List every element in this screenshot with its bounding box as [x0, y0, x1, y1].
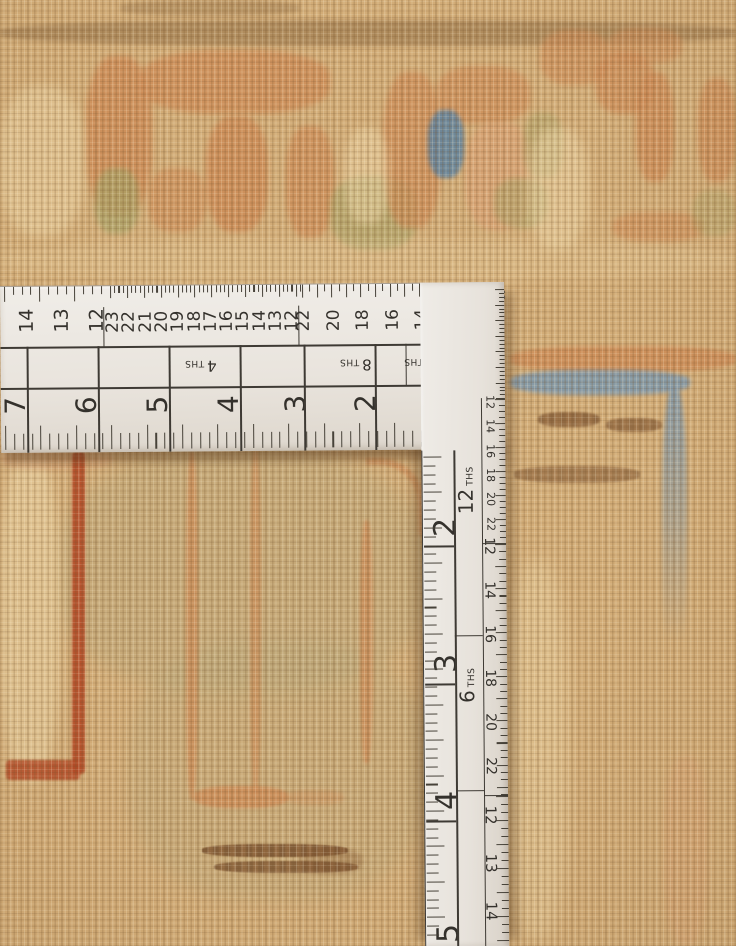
tick [191, 432, 192, 448]
tick [496, 632, 507, 633]
tick [359, 423, 360, 447]
tick [224, 285, 225, 292]
tick [341, 431, 342, 447]
tick [271, 432, 272, 448]
tick [280, 432, 281, 448]
tick [499, 417, 505, 418]
tick [500, 386, 505, 387]
tick [499, 595, 506, 596]
tick [499, 573, 506, 574]
tick [110, 286, 111, 298]
graduation-value: 4 [207, 358, 217, 373]
ruler-engraved-line [1, 385, 429, 390]
tick [317, 284, 318, 297]
tick [404, 284, 405, 297]
tick [424, 545, 436, 546]
tick [502, 860, 509, 861]
tick [502, 884, 509, 885]
tick [5, 426, 6, 450]
tick [501, 804, 508, 805]
tick [412, 431, 413, 447]
tick [426, 766, 438, 767]
tick [499, 435, 505, 436]
tick [114, 286, 115, 293]
tick [424, 483, 436, 484]
tick [262, 432, 263, 448]
tick [499, 581, 506, 582]
tick [235, 432, 236, 448]
tick [127, 286, 128, 298]
tick [495, 305, 504, 306]
tick [397, 284, 398, 291]
tick [500, 603, 507, 604]
tick [390, 284, 391, 297]
ruler-engraved-line [456, 790, 484, 791]
tick [500, 706, 507, 707]
tick [425, 687, 437, 688]
tick [232, 285, 233, 292]
tick [495, 588, 506, 589]
tick [426, 846, 444, 847]
graduation-value: 12 [456, 489, 476, 515]
square-tongue-vertical: 234512141618202212141618202212131412THS6… [420, 282, 509, 946]
tick [207, 285, 208, 292]
tick [13, 287, 14, 295]
tick [424, 510, 436, 511]
tick [496, 698, 507, 699]
scale-number-inch-h: 4 [215, 395, 243, 413]
tick [495, 423, 505, 424]
scale-number-edge-1: 16 [485, 444, 496, 458]
tick [502, 900, 509, 901]
tick [279, 285, 280, 297]
tick [497, 916, 509, 917]
scale-number-top-c: 18 [355, 309, 372, 331]
tick [426, 749, 438, 750]
tick [14, 434, 15, 450]
scale-number-inch-h: 6 [73, 396, 101, 414]
tick [291, 285, 292, 292]
tick [253, 285, 254, 292]
tick [245, 285, 246, 297]
tick [324, 423, 325, 447]
tick [499, 411, 505, 412]
graduation-label: 4THS [185, 358, 217, 373]
tick [425, 607, 437, 608]
tick [386, 431, 387, 447]
tick [499, 559, 506, 560]
tick [424, 501, 436, 502]
tick [120, 433, 121, 449]
tick [424, 492, 442, 493]
tick [500, 371, 505, 372]
tick [66, 286, 67, 294]
tick [501, 750, 508, 751]
scale-number-edge-1: 14 [485, 419, 496, 433]
tick [495, 447, 505, 448]
graduation-label: 8THS [340, 357, 372, 372]
tick [495, 544, 506, 545]
tick [499, 405, 505, 406]
tick [403, 431, 404, 447]
tick [499, 308, 504, 309]
tick [500, 531, 506, 532]
tick [262, 285, 263, 297]
tick [424, 580, 436, 581]
tick [425, 669, 443, 670]
tick [501, 728, 508, 729]
tick [496, 720, 507, 721]
tick [129, 433, 130, 449]
tick [424, 589, 436, 590]
tick [39, 287, 40, 302]
tick [424, 598, 442, 599]
tick [173, 433, 174, 449]
tick [425, 616, 437, 617]
tick [275, 285, 276, 292]
tick [131, 286, 132, 293]
tick [499, 429, 505, 430]
tick [147, 425, 148, 449]
tick [237, 285, 238, 292]
tick [427, 881, 445, 882]
tick [249, 285, 250, 292]
tick [427, 908, 439, 909]
framing-square: 1413122322212019181716151413122220181614… [0, 0, 736, 946]
tick [500, 483, 506, 484]
scale-number-top-a: 13 [53, 308, 72, 332]
tick [427, 864, 439, 865]
scale-number-top-a: 14 [18, 309, 37, 333]
tick [144, 286, 145, 298]
tick [502, 908, 509, 909]
tick [426, 855, 438, 856]
tick-marks [420, 282, 504, 283]
tick [501, 779, 508, 780]
tick [211, 285, 212, 297]
tick [499, 332, 504, 333]
tick [228, 285, 229, 297]
tick [226, 432, 227, 448]
tick [424, 563, 442, 564]
tick [182, 425, 183, 449]
tick [427, 934, 439, 935]
tick [426, 819, 438, 820]
tick [427, 917, 445, 918]
tick [424, 572, 436, 573]
tick [23, 434, 24, 450]
tick [425, 713, 437, 714]
tick [190, 285, 191, 292]
scale-number-edge-2: 12 [482, 537, 496, 555]
tick [501, 828, 508, 829]
tick [426, 731, 438, 732]
tick [111, 425, 112, 449]
tick [427, 926, 439, 927]
tick [394, 423, 395, 447]
tick [41, 426, 42, 450]
tick [194, 285, 195, 297]
tick [496, 383, 505, 384]
tick [426, 740, 444, 741]
tick [368, 431, 369, 447]
tick [499, 453, 505, 454]
tick [300, 285, 301, 292]
tick [74, 286, 75, 301]
tick [427, 890, 439, 891]
scale-number-edge-1: 20 [485, 492, 496, 506]
tick [152, 286, 153, 293]
scale-number-top-c: 16 [385, 309, 402, 331]
tick [101, 286, 102, 294]
tick [346, 284, 347, 297]
tick [424, 474, 436, 475]
tick [425, 660, 437, 661]
tick [496, 495, 506, 496]
tick [497, 892, 509, 893]
tick [253, 424, 254, 448]
tick [500, 662, 507, 663]
tick [500, 525, 506, 526]
tick [500, 363, 505, 364]
tick [377, 431, 378, 447]
tick [424, 554, 436, 555]
tick [375, 284, 376, 297]
tick [501, 757, 508, 758]
scale-number-inch-h: 5 [144, 396, 172, 414]
tick [495, 320, 504, 321]
tick [500, 513, 506, 514]
tick [288, 424, 289, 448]
tick [496, 676, 507, 677]
tick [500, 647, 507, 648]
tick [83, 286, 84, 294]
tick [333, 431, 334, 447]
tick [315, 431, 316, 447]
graduation-value: 8 [362, 357, 372, 372]
tick [496, 796, 508, 797]
tick [499, 293, 504, 294]
tick [283, 285, 284, 292]
tick [501, 852, 508, 853]
tick [502, 924, 509, 925]
tick [309, 285, 310, 292]
scale-number-edge-2: 22 [484, 757, 498, 775]
tick [423, 456, 441, 457]
tick [49, 434, 50, 450]
tick [30, 287, 31, 295]
tick [425, 633, 443, 634]
tick [496, 654, 507, 655]
graduation-unit: THS [340, 357, 360, 366]
tick [217, 424, 218, 448]
ruler-engraved-line [426, 820, 456, 822]
tick [496, 351, 505, 352]
tick [266, 285, 267, 292]
tick [501, 836, 508, 837]
tick [353, 284, 354, 291]
tick [499, 301, 504, 302]
tick [499, 441, 505, 442]
tick [496, 844, 508, 845]
tick [368, 284, 369, 291]
tick [500, 640, 507, 641]
tick [241, 285, 242, 292]
tick [302, 285, 303, 298]
tick [164, 433, 165, 449]
tick [92, 286, 93, 294]
tick [135, 286, 136, 293]
tick [499, 459, 505, 460]
tick [500, 394, 505, 395]
tick [161, 286, 162, 298]
tick [424, 518, 436, 519]
tick [500, 477, 506, 478]
tick [426, 802, 438, 803]
tick [500, 390, 505, 391]
tick [426, 828, 438, 829]
tick [57, 286, 58, 294]
tick [500, 489, 506, 490]
tick [339, 284, 340, 291]
tick [495, 471, 505, 472]
tick [502, 876, 509, 877]
tick [426, 775, 444, 776]
tick [497, 940, 509, 941]
tick [182, 286, 183, 293]
tick [425, 722, 437, 723]
tick [169, 286, 170, 293]
tick [426, 837, 438, 838]
tick [499, 344, 504, 345]
tick [173, 286, 174, 293]
tick [501, 812, 508, 813]
tick [165, 286, 166, 293]
tick [497, 764, 508, 765]
tick [425, 704, 443, 705]
tick [156, 433, 157, 449]
tick [58, 433, 59, 449]
tick [412, 284, 413, 291]
tick [118, 286, 119, 293]
scale-number-edge-2: 20 [483, 713, 497, 731]
tick [496, 820, 508, 821]
tick [103, 433, 104, 449]
tick [495, 399, 505, 400]
tick [499, 312, 504, 313]
tick [499, 551, 506, 552]
tick [425, 651, 437, 652]
tick [178, 286, 179, 298]
tick [424, 536, 436, 537]
graduation-unit: THS [468, 668, 477, 688]
scale-number-inch-h: 3 [282, 395, 310, 413]
ruler-engraved-line [0, 343, 445, 348]
tick [186, 285, 187, 292]
tick [499, 340, 504, 341]
tick [258, 285, 259, 292]
scale-number-edge-1: 18 [485, 468, 496, 482]
tick [426, 793, 438, 794]
tick [502, 932, 509, 933]
tick [495, 566, 506, 567]
tick [426, 810, 444, 811]
tick [501, 735, 508, 736]
tick [123, 286, 124, 293]
tick [500, 375, 505, 376]
tick [140, 286, 141, 293]
photo-scene: 1413122322212019181716151413122220181614… [0, 0, 736, 946]
tick [499, 465, 505, 466]
tick [331, 284, 332, 297]
tick [270, 285, 271, 292]
tick [497, 742, 508, 743]
tick [85, 433, 86, 449]
tick [350, 431, 351, 447]
tick [500, 507, 506, 508]
tick [138, 433, 139, 449]
graduation-label: 6THS [457, 668, 477, 703]
tick [497, 868, 509, 869]
tick [499, 316, 504, 317]
tick [94, 433, 95, 449]
tick [500, 684, 507, 685]
tick [22, 287, 23, 295]
tick [32, 434, 33, 450]
tick [244, 432, 245, 448]
tick [496, 519, 506, 520]
tick [216, 285, 217, 292]
tick [360, 284, 361, 297]
tick [500, 501, 506, 502]
tick [426, 784, 438, 785]
tick [496, 610, 507, 611]
tick [427, 872, 439, 873]
tick [382, 284, 383, 291]
tick [423, 465, 435, 466]
tick [500, 355, 505, 356]
tick [424, 527, 442, 528]
tick [156, 286, 157, 293]
tick [499, 328, 504, 329]
tick [220, 285, 221, 292]
tick [203, 285, 204, 292]
tick [425, 678, 437, 679]
ruler-engraved-line [405, 344, 407, 386]
graduation-value: 6 [457, 690, 477, 703]
tick [287, 285, 288, 292]
scale-number-edge-1: 12 [484, 395, 495, 409]
ruler-engraved-line [425, 683, 455, 685]
tick [497, 787, 508, 788]
tick [500, 669, 507, 670]
scale-number-inch-h: 7 [2, 397, 30, 415]
tick [209, 432, 210, 448]
graduation-label: 12THS [455, 466, 475, 514]
tick [425, 642, 437, 643]
tick [495, 289, 504, 290]
tick [500, 713, 507, 714]
tick [297, 432, 298, 448]
tick [48, 287, 49, 295]
tick [76, 425, 77, 449]
tick [500, 537, 506, 538]
tick [199, 285, 200, 292]
tick [425, 625, 437, 626]
tick [425, 695, 437, 696]
tick [495, 336, 504, 337]
tick [500, 691, 507, 692]
